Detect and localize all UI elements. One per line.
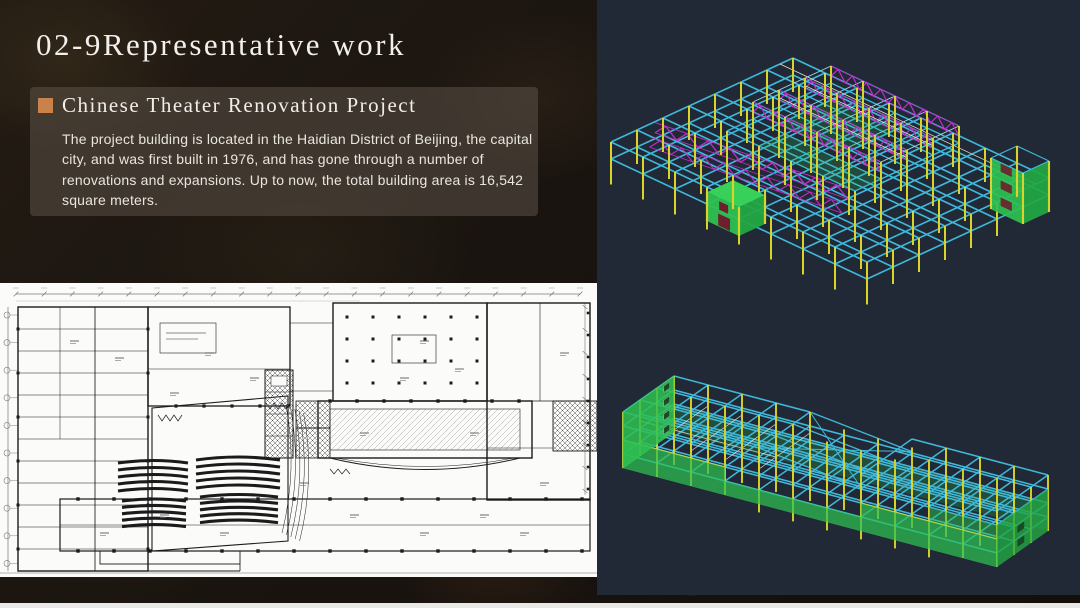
bullet-square-icon bbox=[38, 98, 53, 113]
text-panel: Chinese Theater Renovation Project The p… bbox=[30, 87, 538, 216]
page-title: 02-9Representative work bbox=[36, 27, 406, 63]
section-body: The project building is located in the H… bbox=[62, 129, 542, 211]
structural-models-drawing bbox=[597, 0, 1080, 595]
presentation-slide: 02-9Representative work Chinese Theater … bbox=[0, 0, 1080, 608]
floor-plan-image bbox=[0, 283, 597, 577]
section-heading: Chinese Theater Renovation Project bbox=[62, 93, 416, 118]
cad-viewport bbox=[597, 0, 1080, 595]
bottom-edge bbox=[0, 603, 1080, 608]
floor-plan-drawing bbox=[0, 283, 597, 577]
